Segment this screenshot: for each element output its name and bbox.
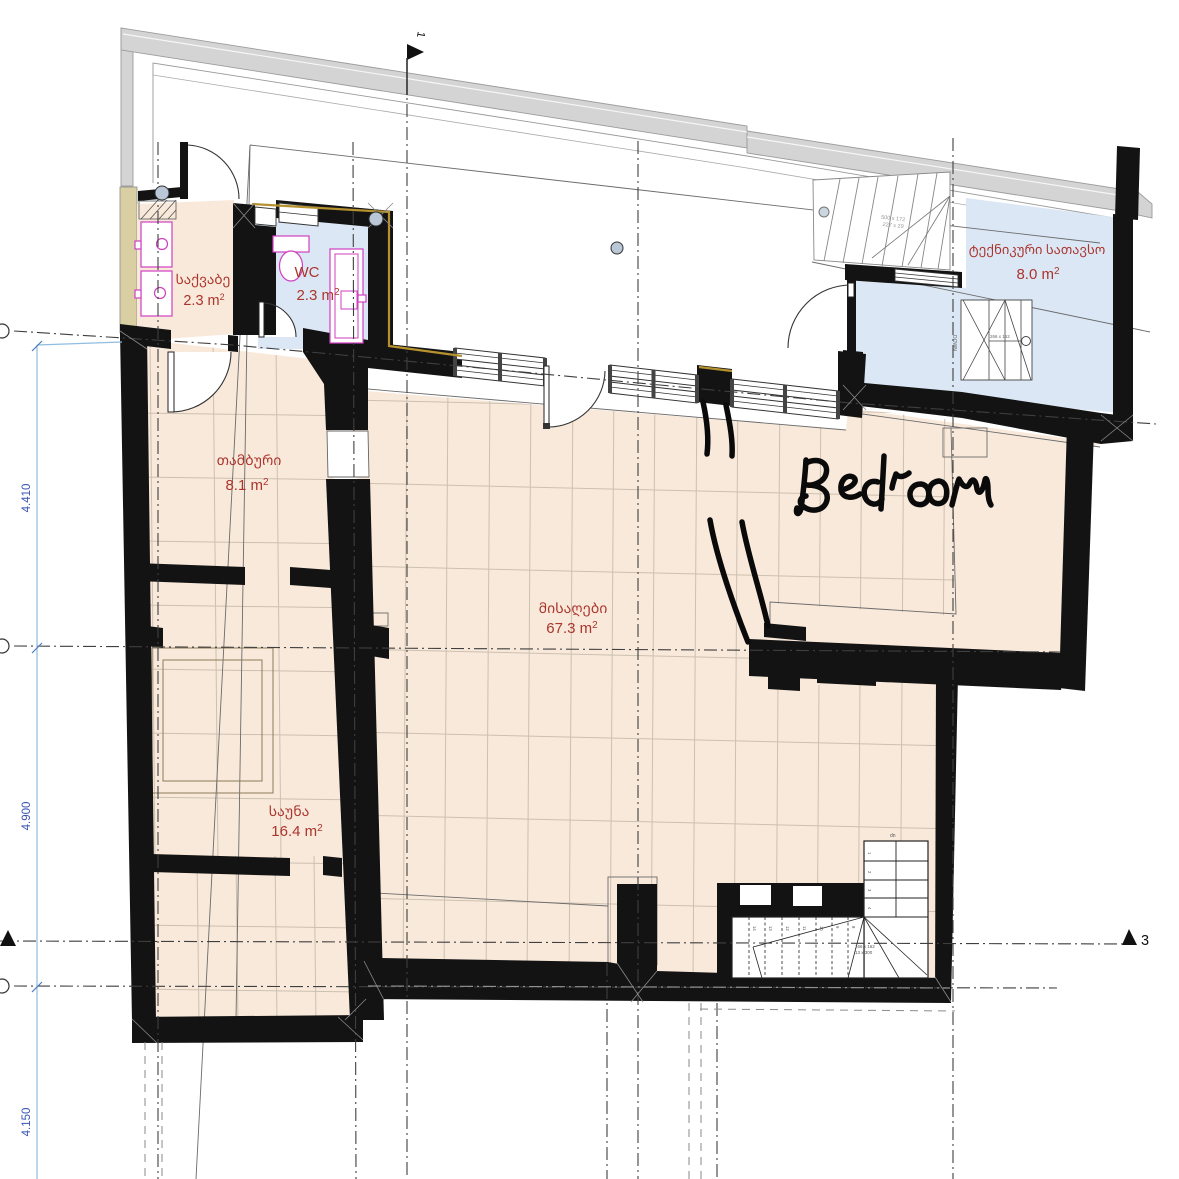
svg-text:12: 12 [785,926,790,931]
svg-text:4.410: 4.410 [21,484,33,513]
svg-text:67.3 m2: 67.3 m2 [546,620,598,637]
svg-text:4.150: 4.150 [21,1108,33,1137]
svg-text:2.3 m2: 2.3 m2 [296,287,340,304]
svg-text:266 x 162: 266 x 162 [990,334,1010,339]
svg-text:13: 13 [768,926,773,931]
svg-text:11: 11 [802,926,807,931]
svg-text:8.0 m2: 8.0 m2 [1016,266,1060,283]
svg-text:8.1 m2: 8.1 m2 [225,477,269,494]
svg-text:10: 10 [819,926,824,931]
svg-text:DOWN: DOWN [951,335,957,351]
svg-text:3: 3 [1141,933,1149,949]
svg-text:WC: WC [295,264,320,281]
svg-text:13 x 300: 13 x 300 [855,950,873,955]
svg-text:166 x 162: 166 x 162 [855,944,875,949]
svg-text:14: 14 [752,926,757,931]
svg-text:16.4 m2: 16.4 m2 [271,823,323,840]
svg-text:4.900: 4.900 [21,802,33,831]
svg-text:2.3 m2: 2.3 m2 [183,292,224,309]
svg-text:dn: dn [890,833,896,839]
